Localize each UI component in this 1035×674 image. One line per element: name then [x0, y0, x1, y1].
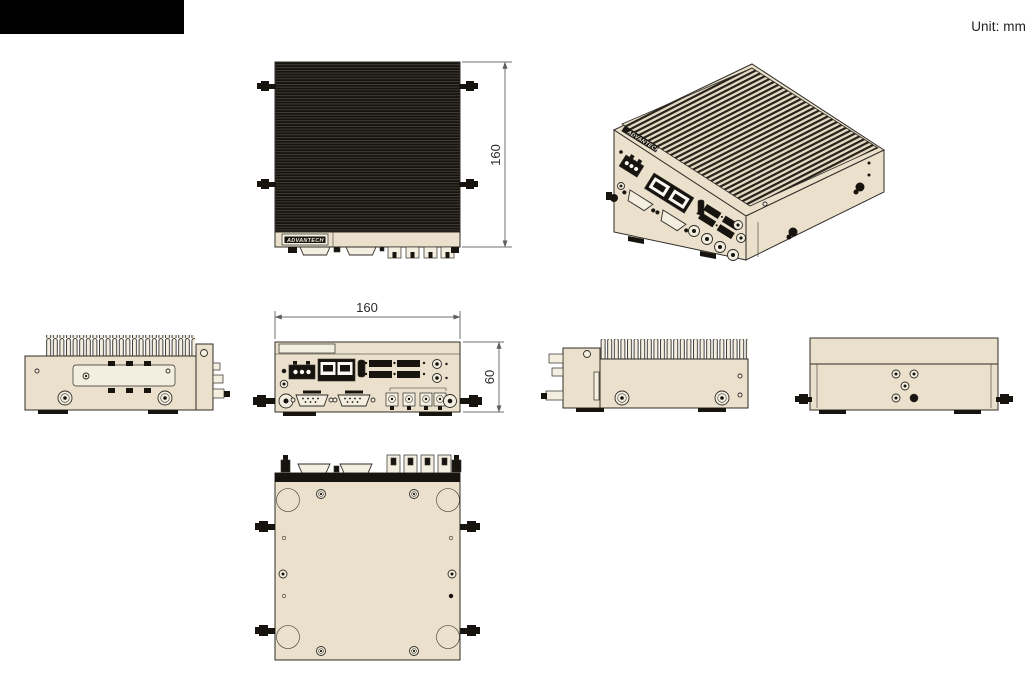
top-recess	[279, 344, 335, 353]
antenna-cap	[476, 627, 480, 634]
screw-pin	[413, 493, 415, 495]
connector-edge	[213, 375, 223, 383]
bnc-pin	[439, 398, 441, 400]
antenna-pin	[284, 399, 289, 404]
antenna-nut	[281, 460, 290, 472]
serial-pin	[312, 398, 314, 400]
usb-port	[397, 360, 420, 367]
serial-body	[296, 395, 328, 406]
serial-pin	[315, 401, 317, 403]
foot	[283, 412, 316, 416]
antenna-nut	[610, 194, 618, 202]
hdmi-port	[358, 360, 365, 377]
screw-pin	[451, 573, 454, 576]
antenna-connector	[460, 521, 480, 532]
antenna-connector	[257, 179, 276, 189]
bnc-pin	[408, 458, 413, 465]
front-edge-band	[275, 473, 460, 482]
mount-tab	[144, 361, 151, 366]
serial-pin	[344, 398, 346, 400]
led-indicator	[365, 373, 367, 375]
screw-pin	[320, 650, 322, 652]
top-view: ADVANTECH 160	[257, 62, 512, 258]
bnc-stem	[424, 406, 428, 410]
bnc-pin	[425, 458, 430, 465]
connector-nut	[288, 247, 297, 253]
terminal-hole	[306, 370, 310, 374]
screw-pin	[85, 375, 87, 377]
screw-pin	[413, 650, 415, 652]
bnc-pin	[718, 245, 722, 249]
bottom-plate	[275, 473, 460, 660]
front-connectors-edge	[281, 455, 461, 473]
front-connectors-edge	[288, 247, 459, 258]
usb-port	[397, 371, 420, 378]
bnc-pin	[705, 237, 709, 241]
antenna-nut	[261, 179, 269, 189]
screw-pin	[320, 493, 322, 495]
usb-port	[369, 371, 392, 378]
antenna-cap	[476, 523, 480, 530]
usb-port	[369, 360, 392, 367]
rear-view	[795, 338, 1013, 414]
antenna-cap	[255, 627, 259, 634]
bnc-pin	[429, 252, 433, 258]
screw-pin	[913, 373, 916, 376]
connector-edge	[213, 363, 220, 370]
serial-pin	[357, 401, 359, 403]
serial-pin	[305, 401, 307, 403]
mount-tab	[144, 388, 151, 393]
dc-jack-pin	[620, 185, 623, 188]
antenna-stem	[459, 84, 467, 89]
bnc-stem	[390, 406, 394, 410]
audio-jack-pin	[435, 376, 439, 380]
ground-screw	[619, 150, 623, 154]
antenna-stem	[266, 398, 275, 404]
led-indicator	[445, 377, 447, 379]
serial-body	[338, 395, 370, 406]
hdmi-port	[698, 200, 704, 215]
connector-stub	[334, 247, 340, 252]
antenna-cap	[1009, 396, 1013, 402]
serial-screw	[291, 398, 295, 402]
antenna-nut	[259, 521, 268, 532]
bnc-pin	[393, 252, 397, 258]
antenna-connector	[255, 521, 275, 532]
isometric-view: ADVANTECH	[606, 64, 884, 261]
antenna-pin	[620, 396, 624, 400]
antenna-cap	[257, 83, 261, 89]
led-indicator	[365, 362, 367, 364]
antenna-cap	[474, 181, 478, 187]
heatsink-fins-top	[275, 62, 460, 232]
antenna-nut	[467, 625, 476, 636]
connector-edge	[552, 368, 563, 376]
serial-pin	[347, 401, 349, 403]
screw-icon	[738, 393, 742, 397]
connector-stub	[334, 466, 339, 472]
bnc-pin	[411, 252, 415, 258]
connector-edge	[546, 391, 563, 400]
dimension-value: 60	[482, 370, 497, 384]
screw-pin	[895, 397, 898, 400]
antenna-nut	[466, 179, 474, 189]
serial-port	[346, 247, 376, 255]
serial-port	[340, 464, 372, 473]
right-side-view	[541, 339, 748, 412]
foot	[954, 410, 981, 414]
antenna-connector	[795, 394, 812, 404]
heatsink-fins-side	[45, 335, 195, 356]
connector-stub	[380, 247, 384, 251]
lan-pin-block	[340, 365, 350, 372]
antenna-cap	[257, 181, 261, 187]
bnc-pin	[425, 398, 427, 400]
antenna-stem	[459, 182, 467, 187]
antenna-connector	[255, 625, 275, 636]
antenna-stem	[267, 524, 275, 530]
left-side-view	[25, 335, 230, 414]
port-label	[303, 391, 321, 394]
screw-icon	[868, 174, 871, 177]
dimension-width: 160	[275, 300, 460, 339]
audio-jack-pin	[736, 223, 739, 226]
mount-tab	[108, 361, 115, 366]
antenna-nut	[466, 81, 474, 91]
serial-pin	[349, 398, 351, 400]
ground-screw	[282, 369, 286, 373]
terminal-hole	[293, 370, 297, 374]
screw-icon	[738, 374, 742, 378]
bnc-pin	[692, 229, 696, 233]
serial-port	[298, 464, 330, 473]
led-indicator	[423, 362, 425, 364]
bnc-stem	[438, 406, 442, 410]
antenna-connector	[460, 395, 482, 407]
audio-jack-pin	[739, 236, 742, 239]
foot	[38, 410, 68, 414]
led-indicator	[445, 363, 447, 365]
front-view: 160 60	[253, 300, 504, 416]
dimension-value: 160	[356, 300, 378, 315]
antenna-pin	[720, 396, 724, 400]
antenna-stem	[268, 182, 276, 187]
antenna-nut	[224, 391, 230, 397]
serial-pin	[354, 398, 356, 400]
antenna-cap	[253, 397, 257, 405]
antenna-cap	[795, 396, 799, 402]
vent-hole	[449, 594, 453, 598]
mount-tab	[108, 388, 115, 393]
technical-drawing-canvas: ADVANTECH 160	[0, 0, 1035, 674]
serial-screw	[329, 398, 333, 402]
foot	[819, 410, 846, 414]
serial-pin	[359, 398, 361, 400]
antenna-cap	[478, 397, 482, 405]
antenna-nut	[452, 460, 461, 472]
antenna-stem	[460, 628, 468, 634]
bnc-pin	[391, 398, 393, 400]
port-label	[345, 391, 363, 394]
bnc-pin	[446, 252, 450, 258]
dc-jack-pin	[283, 383, 286, 386]
bnc-pin	[391, 458, 396, 465]
antenna-pin	[63, 396, 67, 400]
screw-pin	[895, 373, 898, 376]
antenna-connector	[460, 625, 480, 636]
antenna-nut	[257, 395, 266, 407]
antenna-connector	[996, 394, 1013, 404]
bnc-pin	[731, 253, 735, 257]
screw-icon	[201, 350, 208, 357]
dimension-drawing-page: Unit: mm	[0, 0, 1035, 674]
screw-icon	[166, 369, 170, 373]
mount-tab	[126, 388, 133, 393]
antenna-nut	[467, 521, 476, 532]
antenna-stem	[460, 398, 469, 404]
serial-port	[300, 247, 330, 255]
foot	[698, 408, 726, 412]
antenna-stem	[267, 628, 275, 634]
bnc-pin	[442, 458, 447, 465]
led-indicator	[393, 362, 395, 364]
antenna-stem	[787, 235, 792, 240]
lan-pin-block	[323, 365, 333, 372]
terminal-pin	[306, 361, 310, 365]
bnc-pin	[408, 398, 410, 400]
terminal-pin	[293, 361, 297, 365]
antenna-connector	[257, 81, 276, 91]
connector-edge	[213, 389, 224, 398]
rear-body	[810, 338, 998, 410]
serial-pin	[310, 401, 312, 403]
foot	[148, 410, 178, 414]
serial-screw	[333, 398, 337, 402]
connector-edge	[549, 354, 563, 363]
serial-pin	[352, 401, 354, 403]
antenna-nut	[799, 394, 808, 404]
serial-screw	[371, 398, 375, 402]
antenna-stem	[460, 524, 468, 530]
serial-pin	[302, 398, 304, 400]
screw-icon	[868, 162, 871, 165]
bnc-stem	[407, 406, 411, 410]
antenna-connector	[253, 395, 275, 407]
mount-tab	[126, 361, 133, 366]
logo-text: ADVANTECH	[286, 238, 325, 244]
antenna-pin	[163, 396, 167, 400]
terminal-hole	[300, 370, 304, 374]
antenna-cap	[255, 523, 259, 530]
antenna-nut	[469, 395, 478, 407]
antenna-nut	[541, 393, 547, 399]
latch-slot	[594, 372, 599, 400]
antenna-nut	[261, 81, 269, 91]
antenna-stem	[854, 190, 859, 195]
led-indicator	[423, 373, 425, 375]
antenna-pin	[448, 399, 453, 404]
screw-icon	[35, 369, 39, 373]
antenna-nut	[259, 625, 268, 636]
foot	[576, 408, 604, 412]
screw-icon	[763, 202, 767, 206]
heatsink-fins-side	[600, 339, 748, 360]
audio-jack-pin	[435, 362, 439, 366]
antenna-stem	[268, 84, 276, 89]
antenna-connector	[459, 179, 478, 189]
antenna-nut	[1000, 394, 1009, 404]
antenna-connector	[459, 81, 478, 91]
screw-icon	[584, 351, 591, 358]
screw-icon	[910, 394, 918, 402]
screw-pin	[904, 385, 907, 388]
screw-pin	[282, 573, 285, 576]
connector-nut	[451, 247, 459, 253]
serial-pin	[317, 398, 319, 400]
bottom-view	[255, 455, 480, 660]
foot	[419, 412, 452, 416]
serial-pin	[307, 398, 309, 400]
antenna-cap	[474, 83, 478, 89]
led-indicator	[393, 373, 395, 375]
dimension-value: 160	[488, 144, 503, 166]
